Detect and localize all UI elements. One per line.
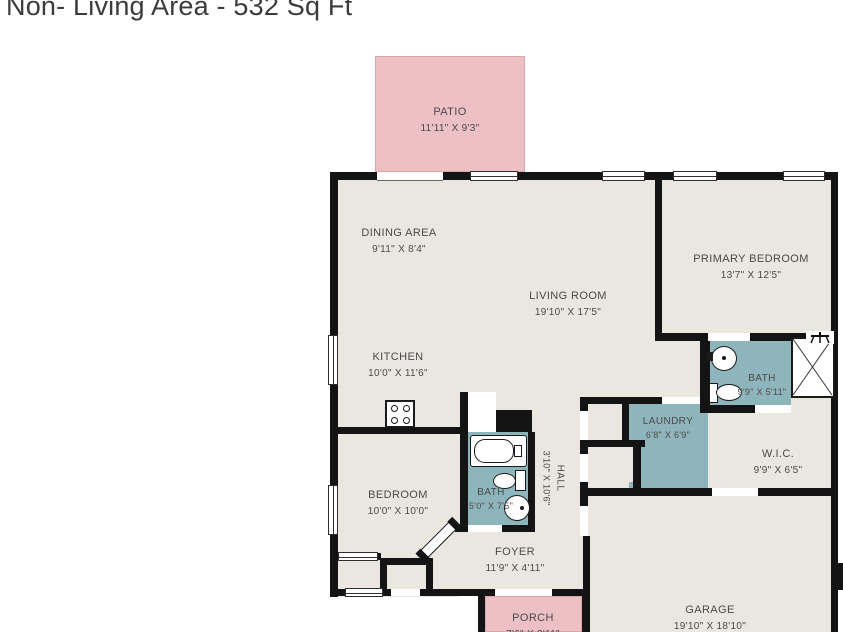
door-bath-main xyxy=(468,525,502,532)
wall-hall xyxy=(580,482,588,506)
bathtub-icon xyxy=(470,435,527,467)
room-dims: 9'11" X 8'4" xyxy=(361,242,436,257)
room-name: GARAGE xyxy=(685,604,734,616)
wall-closet xyxy=(633,447,641,488)
shower-icon xyxy=(791,337,835,398)
door-closet-upper xyxy=(580,411,588,440)
wall xyxy=(330,553,338,560)
faucet-icon xyxy=(706,352,713,361)
wall xyxy=(518,172,602,180)
wall xyxy=(580,397,662,404)
room-name: PRIMARY BEDROOM xyxy=(693,253,809,265)
room-name: KITCHEN xyxy=(372,351,423,363)
room-dims: 7'6" X 3'11" xyxy=(506,627,560,632)
window xyxy=(345,588,383,597)
room-label-bath-main: BATH 5'0" X 7'5" xyxy=(469,485,513,514)
stove-icon xyxy=(385,400,415,428)
room-name: BATH xyxy=(748,373,776,384)
room-dims: 5'0" X 7'5" xyxy=(469,500,513,514)
wall-garage-jamb xyxy=(831,563,843,590)
room-label-kitchen: KITCHEN 10'0" X 11'6" xyxy=(368,349,428,381)
room-name: BATH xyxy=(477,487,505,498)
window xyxy=(673,171,717,181)
wall xyxy=(443,172,470,180)
wall xyxy=(330,589,345,596)
door-laundry xyxy=(662,397,700,404)
wall xyxy=(330,385,338,485)
room-label-dining: DINING AREA 9'11" X 8'4" xyxy=(361,225,436,257)
wall xyxy=(700,405,755,413)
door-bath-main-entry xyxy=(468,392,496,432)
room-name: LAUNDRY xyxy=(643,416,693,427)
window xyxy=(783,171,825,181)
room-name: LIVING ROOM xyxy=(529,290,607,302)
wall-porch xyxy=(582,589,589,632)
room-dims: 3'10" X 10'6" xyxy=(539,451,553,506)
wall xyxy=(383,589,391,596)
wall xyxy=(330,172,338,335)
sink-icon xyxy=(711,346,737,371)
wall xyxy=(528,432,535,532)
room-label-bedroom: BEDROOM 10'0" X 10'0" xyxy=(368,487,428,519)
room-dims: 9'9" X 6'5" xyxy=(754,463,803,478)
shower-head-icon xyxy=(806,331,834,344)
window xyxy=(328,485,338,535)
door-patio-slider xyxy=(377,172,443,181)
room-label-wic: W.I.C. 9'9" X 6'5" xyxy=(754,446,803,478)
room-label-bath-primary: BATH 9'9" X 5'11" xyxy=(738,371,787,400)
window xyxy=(338,552,378,561)
window xyxy=(328,335,338,385)
room-dims: 11'9" X 4'11" xyxy=(486,561,545,576)
room-name: PATIO xyxy=(433,106,466,118)
room-dims: 10'0" X 11'6" xyxy=(368,366,428,381)
door-foyer-garage xyxy=(580,506,588,536)
room-name: PORCH xyxy=(512,612,554,624)
floor-plan: Non- Living Area - 532 Sq Ft xyxy=(0,0,843,632)
window xyxy=(602,171,645,181)
wall-hall xyxy=(580,440,588,454)
closet-lower-area xyxy=(588,447,633,482)
room-name: W.I.C. xyxy=(762,448,794,460)
wall xyxy=(502,525,535,532)
wall-hall xyxy=(580,397,588,411)
toilet-icon xyxy=(515,470,526,491)
room-dims: 13'7" X 12'5" xyxy=(693,268,809,283)
room-label-laundry: LAUNDRY 6'8" X 6'9" xyxy=(643,414,693,443)
room-dims: 19'10" X 17'5" xyxy=(529,305,607,320)
wall xyxy=(717,172,783,180)
door-utility xyxy=(391,589,420,596)
wall xyxy=(330,535,338,597)
room-name: HALL xyxy=(554,465,565,492)
room-dims: 9'9" X 5'11" xyxy=(738,386,787,400)
wall-chase xyxy=(496,410,532,432)
room-label-primary-bedroom: PRIMARY BEDROOM 13'7" X 12'5" xyxy=(693,251,809,283)
wall-primary-bedroom xyxy=(655,172,662,340)
room-label-garage: GARAGE 19'10" X 18'10" xyxy=(674,602,746,632)
door-wic xyxy=(755,405,791,413)
room-dims: 11'11" X 9'3" xyxy=(421,121,480,136)
room-name: FOYER xyxy=(495,546,535,558)
door-closet-lower xyxy=(580,454,588,482)
room-label-foyer: FOYER 11'9" X 4'11" xyxy=(486,544,545,576)
room-dims: 19'10" X 18'10" xyxy=(674,619,746,632)
wall-closet xyxy=(426,558,433,593)
room-label-patio: PATIO 11'11" X 9'3" xyxy=(421,104,480,136)
room-name: DINING AREA xyxy=(361,227,436,239)
wall-closet xyxy=(588,440,645,447)
door-garage xyxy=(712,488,758,496)
room-name: BEDROOM xyxy=(368,489,428,501)
wall-kitchen xyxy=(330,427,460,434)
wall-porch xyxy=(478,589,485,632)
room-label-porch: PORCH 7'6" X 3'11" xyxy=(506,610,560,632)
room-label-living: LIVING ROOM 19'10" X 17'5" xyxy=(529,288,607,320)
wall xyxy=(460,392,468,525)
wall-garage xyxy=(758,488,838,496)
room-label-hall: HALL 3'10" X 10'6" xyxy=(539,451,568,506)
wall-garage xyxy=(583,488,712,496)
window xyxy=(470,171,518,181)
room-dims: 6'8" X 6'9" xyxy=(643,429,693,443)
door-front-entry xyxy=(495,589,552,596)
page-title: Non- Living Area - 532 Sq Ft xyxy=(6,0,352,22)
door-primary-bedroom xyxy=(708,333,750,341)
room-dims: 10'0" X 10'0" xyxy=(368,504,428,519)
wall-closet xyxy=(622,404,629,440)
